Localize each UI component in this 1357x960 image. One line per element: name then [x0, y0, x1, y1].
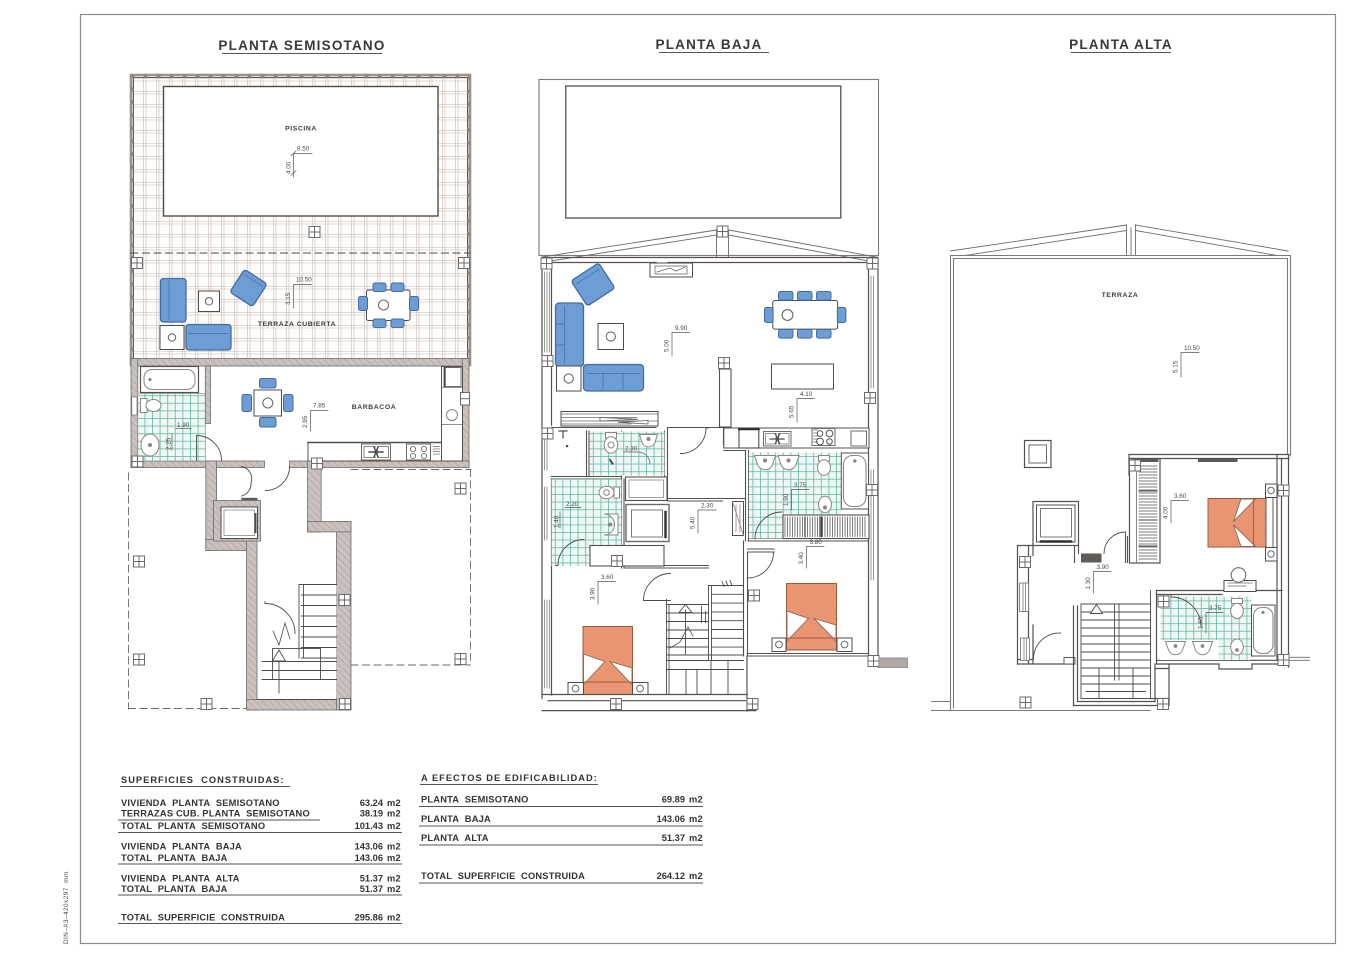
svg-text:4.00: 4.00: [286, 161, 293, 174]
svg-text:264.12: 264.12: [657, 871, 685, 881]
svg-text:63.24: 63.24: [360, 798, 384, 808]
svg-text:10.50: 10.50: [1184, 345, 1200, 352]
svg-text:3.60: 3.60: [1174, 493, 1187, 500]
svg-text:DIN–A3–420x297 mm.: DIN–A3–420x297 mm.: [63, 869, 70, 944]
svg-text:2.30: 2.30: [625, 446, 638, 453]
svg-text:TERRAZAS CUB. PLANTA SEMISOTA: TERRAZAS CUB. PLANTA SEMISOTANO: [121, 809, 310, 819]
svg-text:1.90: 1.90: [783, 493, 790, 506]
svg-text:8.50: 8.50: [297, 146, 310, 153]
svg-text:3.90: 3.90: [1097, 564, 1110, 571]
svg-text:TERRAZA CUBIERTA: TERRAZA CUBIERTA: [258, 321, 336, 328]
svg-text:3.90: 3.90: [590, 587, 597, 600]
svg-text:4.10: 4.10: [800, 391, 813, 398]
svg-text:VIVIENDA PLANTA SEMISOTANO: VIVIENDA PLANTA SEMISOTANO: [121, 798, 280, 808]
svg-text:3.40: 3.40: [798, 552, 805, 565]
svg-text:3.75: 3.75: [1209, 605, 1222, 612]
svg-text:m2: m2: [387, 809, 401, 819]
svg-text:m2: m2: [387, 842, 401, 852]
svg-text:1.30: 1.30: [1085, 577, 1092, 590]
svg-text:TOTAL PLANTA SEMISOTANO: TOTAL PLANTA SEMISOTANO: [121, 821, 265, 831]
svg-text:4.00: 4.00: [1163, 506, 1170, 519]
svg-text:101.43: 101.43: [355, 821, 383, 831]
svg-text:9.90: 9.90: [675, 325, 688, 332]
svg-text:1.40: 1.40: [554, 515, 561, 528]
svg-text:m2: m2: [387, 821, 401, 831]
svg-text:PLANTA ALTA: PLANTA ALTA: [1069, 37, 1173, 52]
svg-text:38.19: 38.19: [360, 809, 383, 819]
svg-text:51.37: 51.37: [360, 884, 383, 894]
svg-text:m2: m2: [689, 814, 703, 824]
svg-text:143.06: 143.06: [355, 842, 383, 852]
svg-text:69.89: 69.89: [662, 795, 685, 805]
svg-text:m2: m2: [689, 871, 703, 881]
svg-text:143.06: 143.06: [657, 814, 685, 824]
svg-text:TOTAL SUPERFICIE CONSTRUIDA: TOTAL SUPERFICIE CONSTRUIDA: [121, 913, 285, 923]
svg-text:PLANTA SEMISOTANO: PLANTA SEMISOTANO: [218, 38, 385, 53]
svg-text:TOTAL SUPERFICIE CONSTRUIDA: TOTAL SUPERFICIE CONSTRUIDA: [421, 871, 585, 881]
svg-text:m2: m2: [689, 795, 703, 805]
svg-text:5.00: 5.00: [664, 339, 671, 352]
svg-text:BARBACOA: BARBACOA: [352, 404, 396, 411]
svg-text:VIVIENDA PLANTA BAJA: VIVIENDA PLANTA BAJA: [121, 842, 242, 852]
svg-text:2.30: 2.30: [701, 503, 714, 510]
svg-text:143.06: 143.06: [355, 853, 383, 863]
svg-text:m2: m2: [387, 853, 401, 863]
svg-text:PISCINA: PISCINA: [285, 126, 317, 133]
svg-text:PLANTA BAJA: PLANTA BAJA: [656, 37, 763, 52]
svg-text:3.75: 3.75: [794, 482, 807, 489]
svg-text:m2: m2: [387, 874, 401, 884]
svg-text:SUPERFICIES CONSTRUIDAS:: SUPERFICIES CONSTRUIDAS:: [121, 775, 284, 785]
svg-text:3.15: 3.15: [285, 292, 292, 305]
svg-text:TOTAL PLANTA BAJA: TOTAL PLANTA BAJA: [121, 884, 228, 894]
svg-text:A EFECTOS DE EDIFICABILIDAD:: A EFECTOS DE EDIFICABILIDAD:: [421, 773, 598, 783]
svg-text:2.95: 2.95: [302, 415, 309, 428]
svg-text:2.20: 2.20: [566, 501, 579, 508]
svg-text:5.15: 5.15: [1173, 360, 1180, 373]
svg-text:2.25: 2.25: [166, 437, 173, 450]
svg-text:295.86: 295.86: [355, 913, 383, 923]
svg-text:5.40: 5.40: [690, 516, 697, 529]
svg-text:10.50: 10.50: [296, 277, 312, 284]
svg-text:51.37: 51.37: [360, 874, 383, 884]
svg-text:PLANTA ALTA: PLANTA ALTA: [421, 833, 489, 843]
svg-text:1.90: 1.90: [177, 422, 190, 429]
svg-text:51.37: 51.37: [662, 833, 685, 843]
svg-text:3.80: 3.80: [810, 539, 823, 546]
svg-text:m2: m2: [387, 913, 401, 923]
svg-text:TERRAZA: TERRAZA: [1102, 292, 1139, 299]
svg-text:m2: m2: [689, 833, 703, 843]
svg-text:VIVIENDA PLANTA ALTA: VIVIENDA PLANTA ALTA: [121, 874, 240, 884]
svg-text:m2: m2: [387, 884, 401, 894]
svg-text:5.65: 5.65: [789, 405, 796, 418]
svg-text:PLANTA SEMISOTANO: PLANTA SEMISOTANO: [421, 795, 529, 805]
svg-text:TOTAL PLANTA BAJA: TOTAL PLANTA BAJA: [121, 853, 228, 863]
svg-text:m2: m2: [387, 798, 401, 808]
svg-text:3.60: 3.60: [601, 574, 614, 581]
svg-text:7.85: 7.85: [313, 403, 326, 410]
svg-text:PLANTA BAJA: PLANTA BAJA: [421, 814, 491, 824]
